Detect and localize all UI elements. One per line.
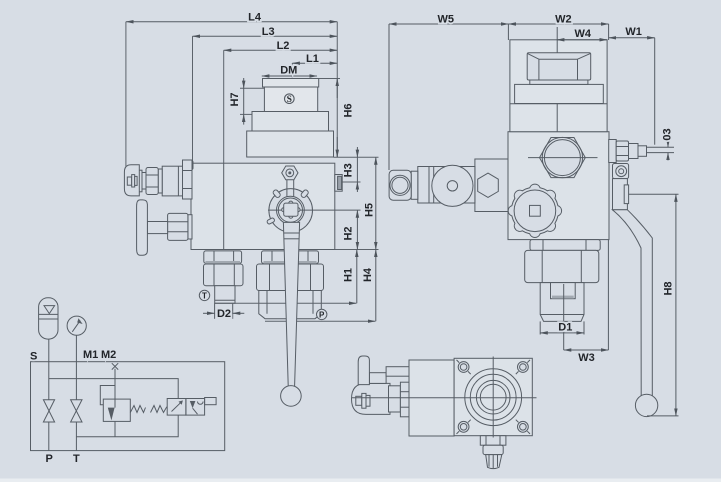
svg-text:H2: H2 xyxy=(342,226,354,240)
svg-text:H4: H4 xyxy=(362,267,374,282)
svg-text:H1: H1 xyxy=(342,268,354,282)
svg-text:S: S xyxy=(287,95,292,105)
svg-text:S: S xyxy=(30,351,37,363)
svg-text:H7: H7 xyxy=(229,92,241,106)
svg-text:H5: H5 xyxy=(363,203,375,217)
svg-text:W5: W5 xyxy=(438,13,455,25)
svg-text:M1: M1 xyxy=(83,349,98,361)
svg-text:L4: L4 xyxy=(248,12,262,24)
svg-text:P: P xyxy=(46,453,53,465)
svg-text:P: P xyxy=(319,310,325,319)
svg-text:H3: H3 xyxy=(342,163,354,177)
svg-text:L3: L3 xyxy=(262,26,275,38)
svg-text:M2: M2 xyxy=(101,349,116,361)
svg-text:H8: H8 xyxy=(662,281,674,295)
svg-text:03: 03 xyxy=(661,128,673,140)
svg-text:W4: W4 xyxy=(575,28,592,40)
svg-text:T: T xyxy=(73,453,80,465)
svg-text:W2: W2 xyxy=(555,13,572,25)
svg-text:T: T xyxy=(202,291,207,300)
svg-text:H6: H6 xyxy=(342,103,354,117)
svg-text:D1: D1 xyxy=(558,322,572,334)
svg-text:L2: L2 xyxy=(277,40,290,52)
svg-text:D2: D2 xyxy=(217,308,231,320)
svg-text:L1: L1 xyxy=(306,53,319,65)
svg-text:DM: DM xyxy=(280,65,297,77)
svg-text:W1: W1 xyxy=(625,26,642,38)
svg-text:W3: W3 xyxy=(578,352,595,364)
